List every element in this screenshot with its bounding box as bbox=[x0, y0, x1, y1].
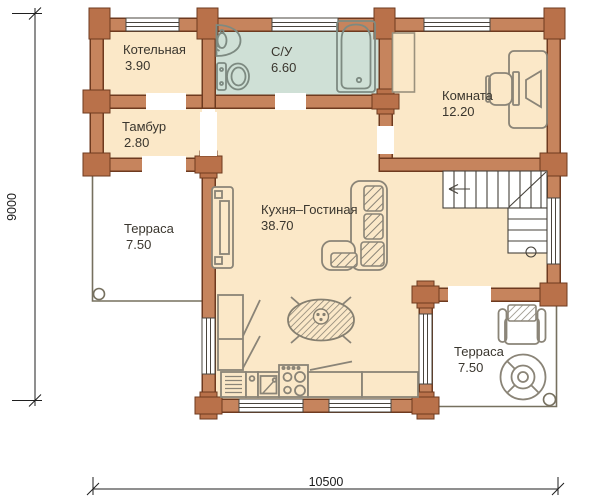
counter-cabinet-1 bbox=[308, 372, 362, 397]
post-cross-br-h bbox=[412, 397, 439, 414]
label-su: С/У bbox=[271, 44, 293, 59]
grill bbox=[501, 355, 546, 400]
label-terrace-right: Терраса bbox=[454, 344, 505, 359]
door-su-kitchen bbox=[275, 93, 306, 110]
window-top-2 bbox=[272, 18, 338, 31]
post-top-left bbox=[89, 8, 110, 39]
label-komnata: Комната bbox=[442, 88, 494, 103]
wall-mid-horizontal bbox=[90, 95, 392, 108]
wardrobe bbox=[393, 33, 415, 92]
stove bbox=[279, 365, 308, 397]
dimension-left: 9000 bbox=[5, 8, 42, 407]
counter-cabinet-2 bbox=[362, 372, 418, 397]
post-left-1 bbox=[83, 90, 110, 113]
window-bottom-1 bbox=[239, 399, 303, 412]
post-cross-terrace-h bbox=[412, 286, 439, 303]
terrace-left-outline bbox=[93, 171, 203, 301]
post-cross-tambur-h bbox=[195, 156, 222, 173]
label-terrace-left: Терраса bbox=[124, 221, 175, 236]
door-kitchen-komnata bbox=[377, 126, 394, 154]
label-kotelnaya-area: 3.90 bbox=[125, 58, 150, 73]
post-cross-su-h bbox=[372, 94, 399, 109]
table-bowl bbox=[314, 309, 329, 324]
terrace-right-furniture bbox=[499, 305, 546, 400]
dimension-bottom: 10500 bbox=[87, 475, 564, 495]
window-top-1 bbox=[126, 18, 179, 31]
terrace-left-post-circle bbox=[94, 289, 105, 300]
label-terrace-right-area: 7.50 bbox=[458, 360, 483, 375]
door-tambur-kitchen bbox=[200, 112, 217, 156]
armchair bbox=[499, 305, 546, 344]
label-kitchen-living-area: 38.70 bbox=[261, 218, 294, 233]
post-left-2 bbox=[83, 153, 110, 176]
label-tambur-area: 2.80 bbox=[124, 135, 149, 150]
post-right-2 bbox=[540, 283, 567, 306]
floor-plan-drawing: Котельная 3.90 С/У 6.60 Комната 12.20 Та… bbox=[0, 0, 608, 502]
post-top-2 bbox=[197, 8, 218, 39]
wall-bottom bbox=[202, 399, 432, 412]
dimension-left-value: 9000 bbox=[5, 193, 19, 221]
label-tambur: Тамбур bbox=[122, 119, 166, 134]
label-komnata-area: 12.20 bbox=[442, 104, 475, 119]
tv-unit bbox=[212, 187, 233, 268]
window-bottom-2 bbox=[329, 399, 391, 412]
window-kitchen-right bbox=[419, 314, 432, 384]
window-top-3 bbox=[424, 18, 490, 31]
label-terrace-left-area: 7.50 bbox=[126, 237, 151, 252]
window-right bbox=[547, 198, 560, 264]
door-tambur-terrace bbox=[142, 156, 186, 173]
door-kotelnaya-tambur bbox=[146, 93, 186, 110]
kotelnaya-floor bbox=[103, 31, 202, 95]
label-kotelnaya: Котельная bbox=[123, 42, 186, 57]
floor-plan-canvas: Котельная 3.90 С/У 6.60 Комната 12.20 Та… bbox=[0, 0, 608, 502]
label-su-area: 6.60 bbox=[271, 60, 296, 75]
dining-table bbox=[288, 297, 354, 343]
dimension-bottom-value: 10500 bbox=[309, 475, 344, 489]
window-kitchen-left bbox=[202, 318, 215, 374]
door-kitchen-terrace bbox=[448, 286, 491, 303]
post-top-right bbox=[544, 8, 565, 39]
wall-komnata-bottom bbox=[379, 158, 560, 171]
label-kitchen-living: Кухня–Гостиная bbox=[261, 202, 358, 217]
post-cross-bl-h bbox=[195, 397, 222, 414]
terrace-right-post-circle bbox=[544, 394, 556, 406]
